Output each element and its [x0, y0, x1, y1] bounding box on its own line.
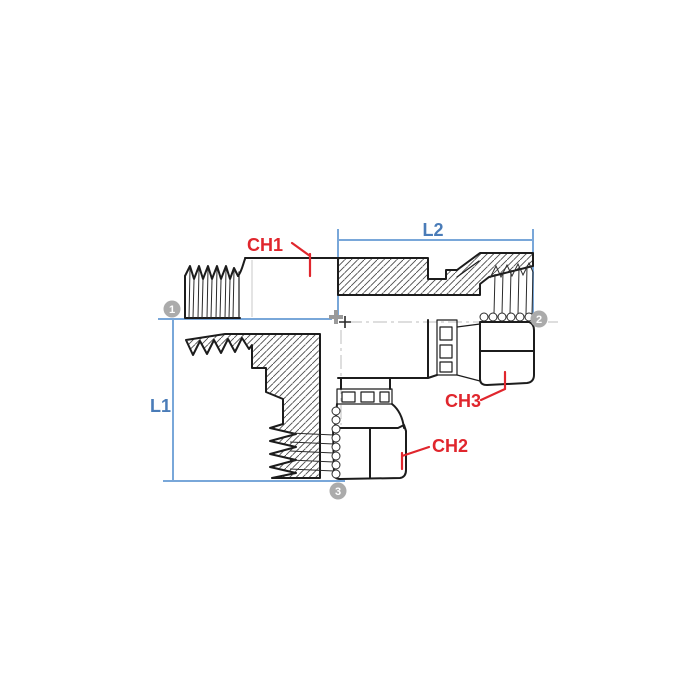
ch1-label: CH1: [247, 235, 283, 255]
port2-swivel-nut: [480, 322, 534, 385]
elbow-section-lower-left: [186, 334, 334, 478]
port-marker-2: 2: [531, 311, 548, 328]
port1-male-thread: [185, 259, 252, 318]
ch3-leader-line: [481, 372, 505, 400]
port-marker-2-number: 2: [536, 314, 542, 326]
port3-swivel-nut: [333, 425, 406, 479]
ch3-label: CH3: [445, 391, 481, 411]
technical-drawing-canvas: L2 L1 CH1 CH2 CH3 1 2 3: [0, 0, 700, 700]
port-marker-1: 1: [164, 301, 181, 318]
port-marker-1-number: 1: [169, 304, 175, 316]
fitting-drawing: L2 L1 CH1 CH2 CH3 1 2 3: [0, 0, 700, 700]
port-marker-3-number: 3: [335, 486, 341, 498]
port2-thread-root-circles: [480, 313, 533, 321]
l2-label: L2: [422, 220, 443, 240]
ch1-callout: CH1: [247, 235, 310, 276]
l1-label: L1: [150, 396, 171, 416]
ch2-callout: CH2: [402, 436, 468, 469]
ch2-label: CH2: [432, 436, 468, 456]
fitting-body: [185, 253, 534, 479]
leg-flare: [335, 404, 404, 428]
ch1-leader-line: [292, 243, 310, 276]
bottom-leg: [332, 378, 406, 479]
ch3-callout: CH3: [445, 372, 505, 411]
port2-knurl-ring: [437, 320, 480, 381]
port-marker-3: 3: [330, 483, 347, 500]
port3-knurl-ring: [337, 389, 392, 404]
body-section-upper-right: [338, 253, 533, 321]
